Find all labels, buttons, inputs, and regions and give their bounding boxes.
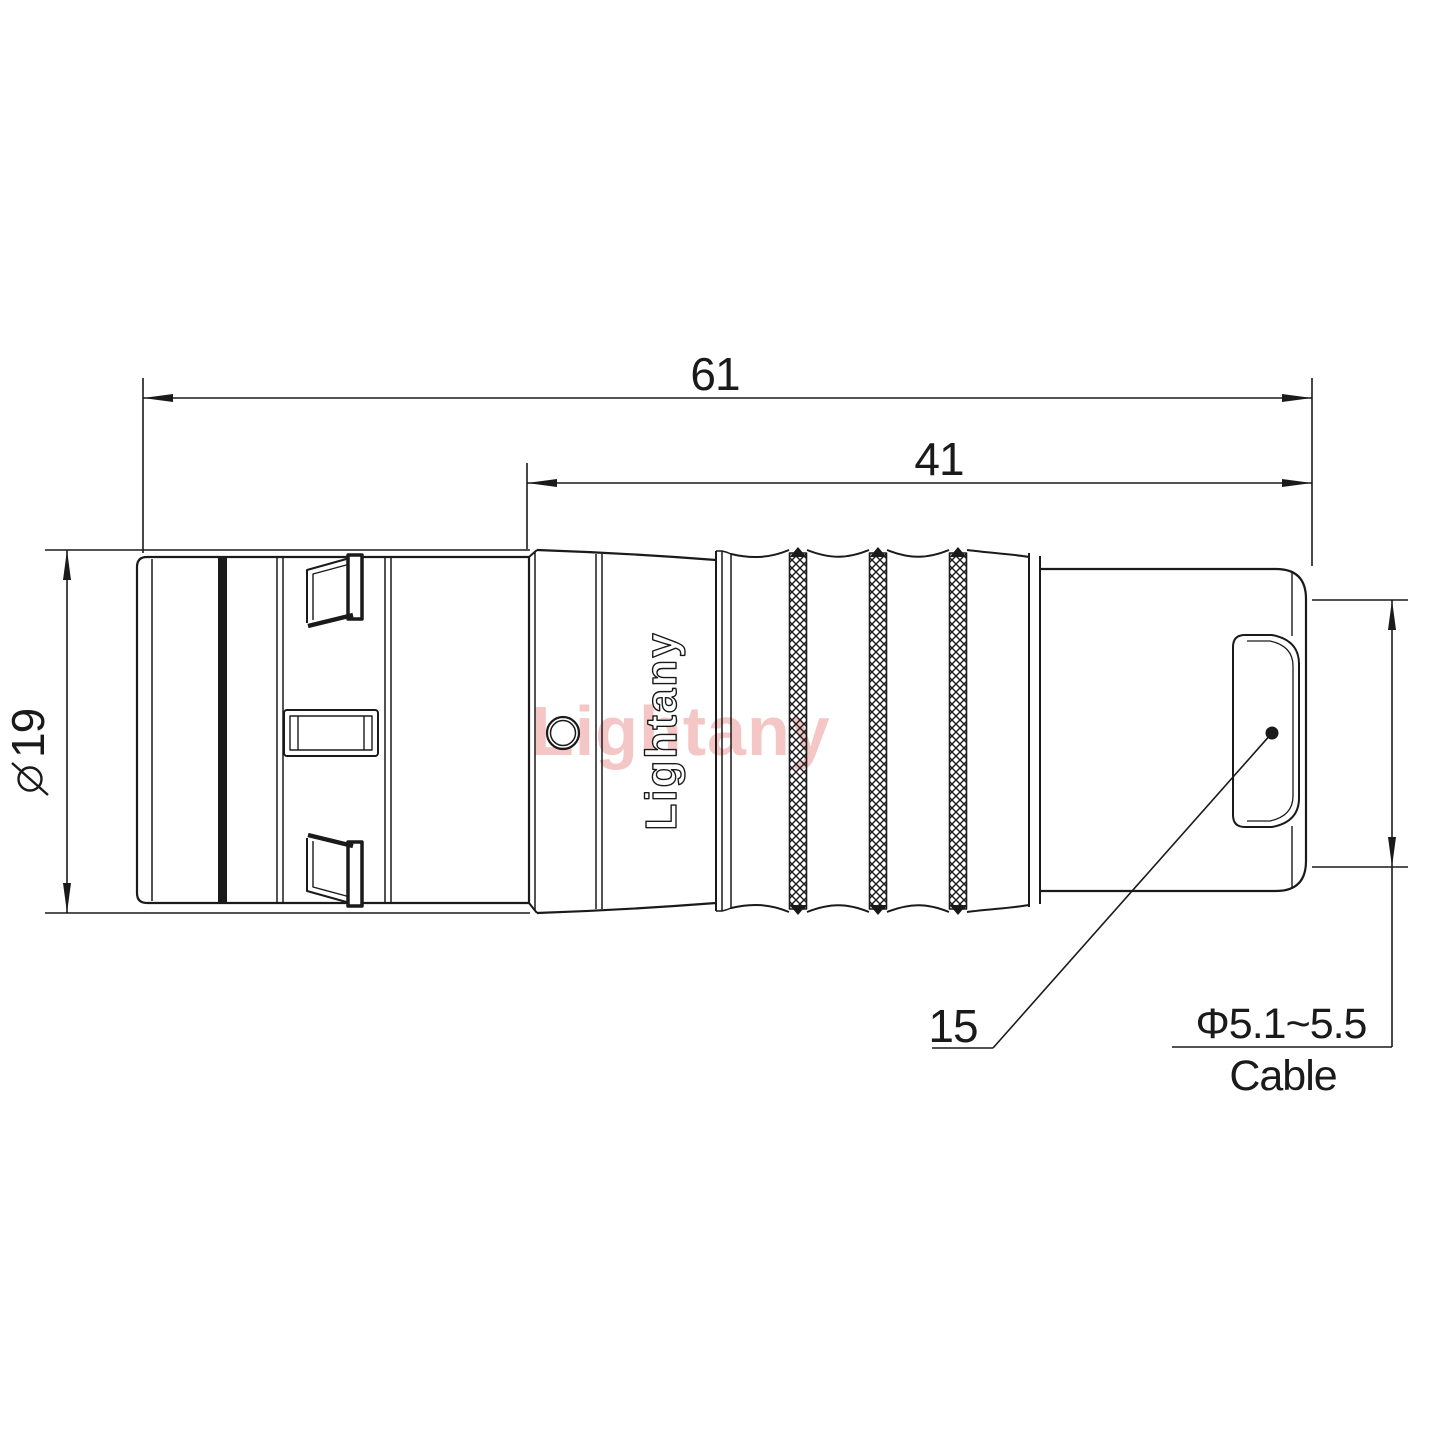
knurl-band-pattern	[870, 553, 887, 909]
dim-cable-range-value: Φ5.1~5.5	[1196, 1000, 1367, 1048]
arrowhead-right	[1282, 394, 1312, 402]
arrowhead-left	[527, 479, 557, 487]
arrowhead-left	[143, 394, 173, 402]
knurl-band-2	[870, 547, 887, 915]
knurl-band-1	[790, 547, 807, 915]
dim-overall-length: 61	[143, 348, 1312, 566]
dim-barrel-length: 41	[527, 433, 1312, 549]
taper-flange-fill	[1029, 553, 1040, 907]
coupling-shell-fill	[137, 557, 529, 903]
arrowhead-bottom	[63, 883, 71, 913]
dim-shell-diameter-label: 19	[2, 709, 54, 795]
knurl-band-3	[950, 547, 967, 915]
brand-engraving: Lightany	[637, 631, 686, 830]
knurl-band-pattern	[790, 553, 807, 909]
coupling-black-band	[218, 558, 227, 902]
lug-top-bar	[348, 555, 362, 619]
dim-barrel-length-value: 41	[914, 433, 963, 485]
arrowhead-right	[1282, 479, 1312, 487]
dim-shell-diameter-value: 19	[2, 709, 54, 758]
dim-cable-word: Cable	[1229, 1052, 1336, 1100]
dim-overall-length-value: 61	[690, 348, 739, 400]
brand-engraving-text: Lightany	[637, 631, 686, 830]
knurl-band-pattern	[950, 553, 967, 909]
arrowhead-bottom	[1388, 837, 1396, 867]
arrowhead-top	[1388, 600, 1396, 630]
arrowhead-top	[63, 550, 71, 580]
lug-bottom-bar	[348, 842, 362, 906]
rear-body-fill	[1040, 569, 1306, 891]
technical-drawing-canvas: Lightany	[0, 0, 1440, 1440]
connector-drawing-svg: Lightany	[0, 0, 1440, 1440]
dim-shell-size-value: 15	[928, 1000, 977, 1052]
